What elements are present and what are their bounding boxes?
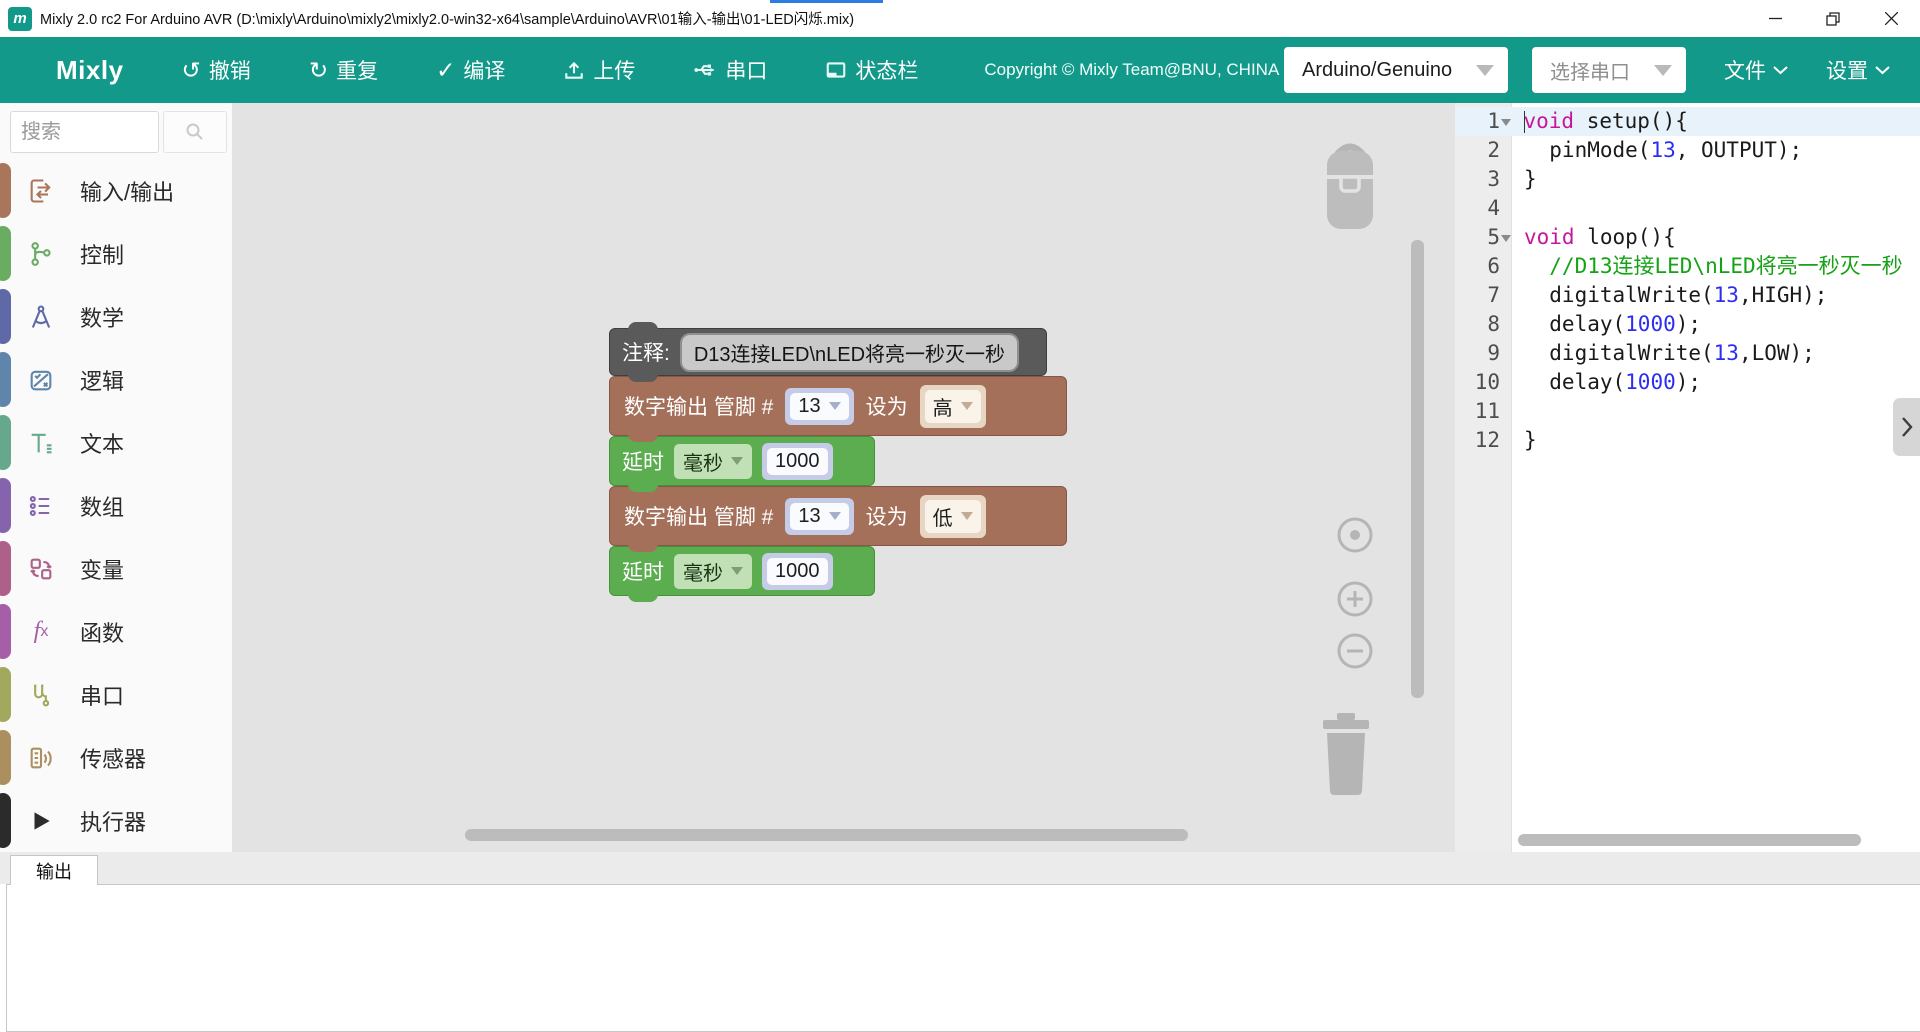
code-line: 4: [1455, 194, 1920, 223]
window-controls: [1746, 0, 1920, 37]
line-number: 10: [1455, 368, 1512, 397]
close-icon: [1885, 12, 1898, 25]
file-menu[interactable]: 文件: [1724, 55, 1788, 85]
upload-icon: [563, 59, 585, 81]
generated-code: 1void setup(){2 pinMode(13, OUTPUT);3}45…: [1455, 107, 1920, 455]
code-panel: 1void setup(){2 pinMode(13, OUTPUT);3}45…: [1455, 103, 1920, 852]
fold-marker-icon[interactable]: [1501, 235, 1511, 242]
sidebar-item-function[interactable]: fx 函数: [0, 600, 232, 663]
line-number: 2: [1455, 136, 1512, 165]
dropdown-arrow-icon: [829, 512, 841, 520]
block-delay[interactable]: 延时 毫秒 1000: [609, 546, 875, 596]
block-bottom-tab: [628, 544, 658, 552]
close-button[interactable]: [1862, 0, 1920, 37]
code-line: 7 digitalWrite(13,HIGH);: [1455, 281, 1920, 310]
mixly-brand: Mixly: [56, 55, 124, 86]
serial-monitor-button[interactable]: 串口: [693, 55, 767, 85]
chevron-down-icon: [1875, 66, 1890, 75]
category-color-bar: [0, 289, 11, 344]
search-button[interactable]: [163, 111, 227, 153]
code-line: 8 delay(1000);: [1455, 310, 1920, 339]
sidebar-item-input-output[interactable]: 输入/输出: [0, 159, 232, 222]
chevron-down-icon: [1773, 66, 1788, 75]
dropdown-arrow-icon: [731, 457, 743, 465]
line-number: 9: [1455, 339, 1512, 368]
canvas-horizontal-scrollbar[interactable]: [465, 829, 1188, 841]
chevron-down-icon: [1476, 65, 1494, 76]
serial-port-icon: [26, 680, 56, 710]
level-value-block[interactable]: 高: [920, 385, 986, 428]
code-horizontal-scrollbar[interactable]: [1518, 834, 1861, 846]
sidebar-item-text[interactable]: 文本: [0, 411, 232, 474]
search-input[interactable]: [10, 111, 159, 153]
line-number: 1: [1455, 107, 1512, 136]
titlebar-accent-strip: [770, 0, 883, 3]
input-output-icon: [26, 176, 56, 206]
copyright-text: Copyright © Mixly Team@BNU, CHINA: [984, 60, 1279, 80]
code-line: 2 pinMode(13, OUTPUT);: [1455, 136, 1920, 165]
sidebar-item-array[interactable]: 数组: [0, 474, 232, 537]
minimize-icon: [1769, 12, 1782, 25]
sidebar-item-math[interactable]: 数学: [0, 285, 232, 348]
category-color-bar: [0, 667, 11, 722]
pin-value-block[interactable]: 13: [785, 498, 853, 535]
undo-icon: ↺: [182, 59, 201, 82]
output-tab-strip: [0, 852, 1920, 884]
line-number: 8: [1455, 310, 1512, 339]
output-console: [6, 884, 1920, 1032]
minimize-button[interactable]: [1746, 0, 1804, 37]
settings-menu[interactable]: 设置: [1826, 55, 1890, 85]
dropdown-arrow-icon: [731, 567, 743, 575]
category-color-bar: [0, 415, 11, 470]
redo-icon: ↻: [309, 59, 328, 82]
comment-text-field[interactable]: D13连接LED\nLED将亮一秒灭一秒: [680, 333, 1019, 372]
code-text: //D13连接LED\nLED将亮一秒灭一秒: [1512, 252, 1903, 281]
code-line: 10 delay(1000);: [1455, 368, 1920, 397]
line-number: 11: [1455, 397, 1512, 426]
canvas-vertical-scrollbar[interactable]: [1411, 240, 1424, 698]
upload-button[interactable]: 上传: [563, 55, 635, 85]
code-text: }: [1512, 426, 1537, 455]
serial-port-select[interactable]: 选择串口: [1532, 47, 1686, 93]
search-row: [10, 111, 229, 153]
code-line: 5void loop(){: [1455, 223, 1920, 252]
level-dropdown[interactable]: 低: [925, 500, 981, 533]
category-color-bar: [0, 352, 11, 407]
code-line: 3}: [1455, 165, 1920, 194]
compile-check-icon: ✓: [436, 59, 455, 82]
chevron-right-icon: [1901, 416, 1913, 438]
sidebar-item-sensor[interactable]: 传感器: [0, 726, 232, 789]
line-number: 4: [1455, 194, 1512, 223]
toolbar-right-group: Arduino/Genuino 选择串口 文件 设置: [1284, 47, 1890, 93]
logic-icon: [26, 365, 56, 395]
level-value-block[interactable]: 低: [920, 495, 986, 538]
delay-unit-dropdown[interactable]: 毫秒: [674, 554, 752, 589]
blockly-workspace[interactable]: 注释: D13连接LED\nLED将亮一秒灭一秒 数字输出 管脚 # 13 设为…: [233, 103, 1455, 852]
code-text: [1512, 397, 1524, 426]
main-toolbar: Mixly ↺ 撤销 ↻ 重复 ✓ 编译 上传 串口 状态栏 Copyright…: [0, 37, 1920, 103]
control-icon: [26, 239, 56, 269]
category-color-bar: [0, 730, 11, 785]
variable-icon: [26, 554, 56, 584]
pin-dropdown[interactable]: 13: [790, 393, 848, 420]
function-icon: fx: [26, 617, 56, 647]
delay-value-block[interactable]: 1000: [762, 553, 833, 590]
pin-value-block[interactable]: 13: [785, 388, 853, 425]
category-color-bar: [0, 226, 11, 281]
dropdown-arrow-icon: [829, 402, 841, 410]
dropdown-arrow-icon: [961, 512, 973, 520]
category-color-bar: [0, 478, 11, 533]
mixly-app-icon: m: [8, 7, 32, 31]
block-delay[interactable]: 延时 毫秒 1000: [609, 436, 875, 486]
sidebar-item-actuator[interactable]: 执行器: [0, 789, 232, 852]
code-line: 12}: [1455, 426, 1920, 455]
line-number: 3: [1455, 165, 1512, 194]
redo-button[interactable]: ↻ 重复: [309, 55, 378, 85]
code-text: void setup(){: [1512, 107, 1688, 136]
sidebar-item-serial[interactable]: 串口: [0, 663, 232, 726]
chevron-down-icon: [1654, 65, 1672, 76]
search-icon: [185, 122, 205, 142]
statusbar-toggle-button[interactable]: 状态栏: [825, 55, 918, 85]
delay-value-block[interactable]: 1000: [762, 443, 833, 480]
sidebar-item-logic[interactable]: 逻辑: [0, 348, 232, 411]
code-text: digitalWrite(13,LOW);: [1512, 339, 1815, 368]
code-panel-expander-button[interactable]: [1893, 398, 1920, 456]
restore-button[interactable]: [1804, 0, 1862, 37]
line-number: 5: [1455, 223, 1512, 252]
output-tab[interactable]: 输出: [10, 855, 98, 885]
sensor-icon: [26, 743, 56, 773]
code-line: 1void setup(){: [1455, 107, 1920, 136]
delay-value-field[interactable]: 1000: [767, 558, 828, 585]
fold-marker-icon[interactable]: [1501, 119, 1511, 126]
dropdown-arrow-icon: [961, 402, 973, 410]
statusbar-icon: [825, 59, 847, 81]
block-digital-write-high[interactable]: 数字输出 管脚 # 13 设为 高: [609, 376, 1067, 436]
text-icon: [26, 428, 56, 458]
code-text: void loop(){: [1512, 223, 1676, 252]
sidebar-item-variable[interactable]: 变量: [0, 537, 232, 600]
pin-dropdown[interactable]: 13: [790, 503, 848, 530]
backpack-icon[interactable]: [1319, 133, 1381, 242]
code-text: }: [1512, 165, 1537, 194]
code-text: [1512, 194, 1524, 223]
code-text: delay(1000);: [1512, 310, 1701, 339]
serial-monitor-icon: [693, 59, 717, 81]
line-number: 12: [1455, 426, 1512, 455]
delay-value-field[interactable]: 1000: [767, 448, 828, 475]
board-select[interactable]: Arduino/Genuino: [1284, 47, 1508, 93]
delay-unit-dropdown[interactable]: 毫秒: [674, 444, 752, 479]
block-bottom-tab: [628, 594, 658, 602]
category-color-bar: [0, 541, 11, 596]
block-digital-write-low[interactable]: 数字输出 管脚 # 13 设为 低: [609, 486, 1067, 546]
code-line: 11: [1455, 397, 1920, 426]
category-color-bar: [0, 793, 11, 848]
zoom-reset-button[interactable]: [1333, 513, 1377, 562]
code-text: pinMode(13, OUTPUT);: [1512, 136, 1802, 165]
block-bottom-tab: [628, 374, 658, 382]
category-color-bar: [0, 604, 11, 659]
trash-icon[interactable]: [1315, 711, 1377, 800]
window-title: Mixly 2.0 rc2 For Arduino AVR (D:\mixly\…: [40, 8, 854, 29]
title-bar: m Mixly 2.0 rc2 For Arduino AVR (D:\mixl…: [0, 0, 1920, 37]
block-category-sidebar: 输入/输出 控制 数学 逻辑 文本 数组: [0, 103, 233, 852]
block-top-notch: [628, 322, 658, 330]
level-dropdown[interactable]: 高: [925, 390, 981, 423]
sidebar-item-control[interactable]: 控制: [0, 222, 232, 285]
line-number: 7: [1455, 281, 1512, 310]
line-number: 6: [1455, 252, 1512, 281]
code-text: digitalWrite(13,HIGH);: [1512, 281, 1827, 310]
zoom-out-button[interactable]: [1333, 629, 1377, 678]
restore-icon: [1826, 12, 1840, 26]
array-icon: [26, 491, 56, 521]
undo-button[interactable]: ↺ 撤销: [182, 55, 251, 85]
code-line: 6 //D13连接LED\nLED将亮一秒灭一秒: [1455, 252, 1920, 281]
math-icon: [26, 302, 56, 332]
category-color-bar: [0, 163, 11, 218]
block-bottom-tab: [628, 434, 658, 442]
code-text: delay(1000);: [1512, 368, 1701, 397]
block-bottom-tab: [628, 484, 658, 492]
zoom-in-button[interactable]: [1333, 577, 1377, 626]
block-comment[interactable]: 注释: D13连接LED\nLED将亮一秒灭一秒: [609, 328, 1047, 376]
code-line: 9 digitalWrite(13,LOW);: [1455, 339, 1920, 368]
actuator-icon: [26, 806, 56, 836]
compile-button[interactable]: ✓ 编译: [436, 55, 505, 85]
